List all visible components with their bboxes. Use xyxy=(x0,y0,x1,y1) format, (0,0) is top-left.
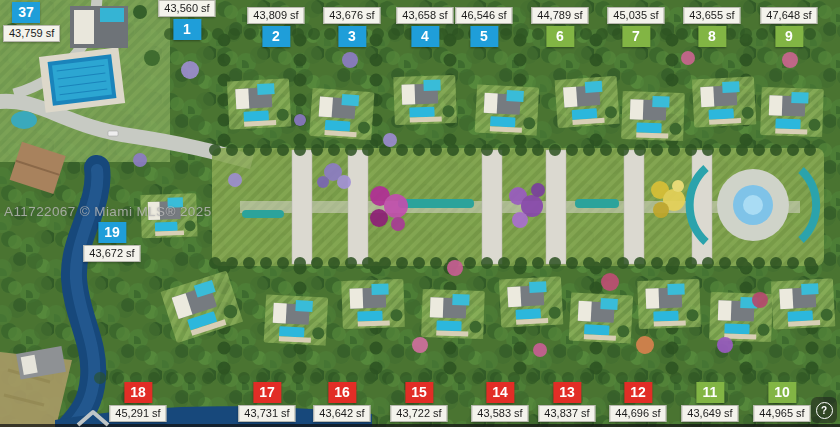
help-button[interactable]: ? xyxy=(811,397,837,423)
lot-marker-19: 19 43,672 sf xyxy=(83,222,140,262)
lot-area-label: 43,676 sf xyxy=(323,7,380,24)
chevron-up-icon xyxy=(76,409,110,427)
lot-area-label: 43,649 sf xyxy=(681,405,738,422)
lot-number-badge: 8 xyxy=(698,26,726,47)
lot-area-label: 45,291 sf xyxy=(109,405,166,422)
site-plan-image[interactable]: A11722067 © Miami MLS® 2025 37 43,759 sf… xyxy=(0,0,840,427)
lot-marker-6: 44,789 sf 6 xyxy=(531,7,588,47)
lot-marker-9: 47,648 sf 9 xyxy=(760,7,817,47)
lot-number-badge: 4 xyxy=(411,26,439,47)
lot-marker-16: 16 43,642 sf xyxy=(313,382,370,422)
lot-marker-4: 43,658 sf 4 xyxy=(396,7,453,47)
lot-area-label: 46,546 sf xyxy=(455,7,512,24)
lot-number-badge: 11 xyxy=(696,382,724,403)
lot-number-badge: 12 xyxy=(624,382,652,403)
lot-number-badge: 10 xyxy=(768,382,796,403)
lot-number-badge: 2 xyxy=(262,26,290,47)
mls-watermark: A11722067 © Miami MLS® 2025 xyxy=(4,204,212,219)
lot-area-label: 43,560 sf xyxy=(158,0,215,17)
lot-area-label: 43,809 sf xyxy=(247,7,304,24)
lot-marker-14: 14 43,583 sf xyxy=(471,382,528,422)
lot-marker-3: 43,676 sf 3 xyxy=(323,7,380,47)
lot-area-label: 43,658 sf xyxy=(396,7,453,24)
lot-marker-12: 12 44,696 sf xyxy=(609,382,666,422)
lot-marker-15: 15 43,722 sf xyxy=(390,382,447,422)
lot-marker-10: 10 44,965 sf xyxy=(753,382,810,422)
lot-number-badge: 9 xyxy=(775,26,803,47)
lot-number-badge: 3 xyxy=(338,26,366,47)
lot-area-label: 44,789 sf xyxy=(531,7,588,24)
lot-marker-8: 43,655 sf 8 xyxy=(683,7,740,47)
lot-number-badge: 5 xyxy=(470,26,498,47)
lot-area-label: 43,731 sf xyxy=(238,405,295,422)
lot-marker-13: 13 43,837 sf xyxy=(538,382,595,422)
lot-number-badge: 16 xyxy=(328,382,356,403)
lot-area-label: 43,642 sf xyxy=(313,405,370,422)
lot-marker-18: 18 45,291 sf xyxy=(109,382,166,422)
lot-area-label: 45,035 sf xyxy=(607,7,664,24)
lot-number-badge: 17 xyxy=(253,382,281,403)
lot-number-badge: 7 xyxy=(622,26,650,47)
lot-number-badge: 19 xyxy=(98,222,126,243)
lot-area-label: 44,965 sf xyxy=(753,405,810,422)
lot-area-label: 43,672 sf xyxy=(83,245,140,262)
lot-number-badge: 37 xyxy=(12,2,40,23)
lot-number-badge: 1 xyxy=(173,19,201,40)
lot-number-badge: 6 xyxy=(546,26,574,47)
lot-area-label: 43,759 sf xyxy=(3,25,60,42)
lot-marker-37: 37 43,759 sf xyxy=(3,2,60,42)
lot-area-label: 43,837 sf xyxy=(538,405,595,422)
help-icon: ? xyxy=(816,402,833,419)
lot-area-label: 43,583 sf xyxy=(471,405,528,422)
lot-area-label: 43,655 sf xyxy=(683,7,740,24)
lot-marker-11: 11 43,649 sf xyxy=(681,382,738,422)
lot-number-badge: 18 xyxy=(124,382,152,403)
lot-number-badge: 15 xyxy=(405,382,433,403)
lot-marker-17: 17 43,731 sf xyxy=(238,382,295,422)
lot-number-badge: 14 xyxy=(486,382,514,403)
lot-marker-2: 43,809 sf 2 xyxy=(247,7,304,47)
lot-area-label: 44,696 sf xyxy=(609,405,666,422)
lot-area-label: 43,722 sf xyxy=(390,405,447,422)
lot-marker-7: 45,035 sf 7 xyxy=(607,7,664,47)
lot-number-badge: 13 xyxy=(553,382,581,403)
lot-marker-1: 43,560 sf 1 xyxy=(158,0,215,40)
lot-area-label: 47,648 sf xyxy=(760,7,817,24)
lot-marker-5: 46,546 sf 5 xyxy=(455,7,512,47)
